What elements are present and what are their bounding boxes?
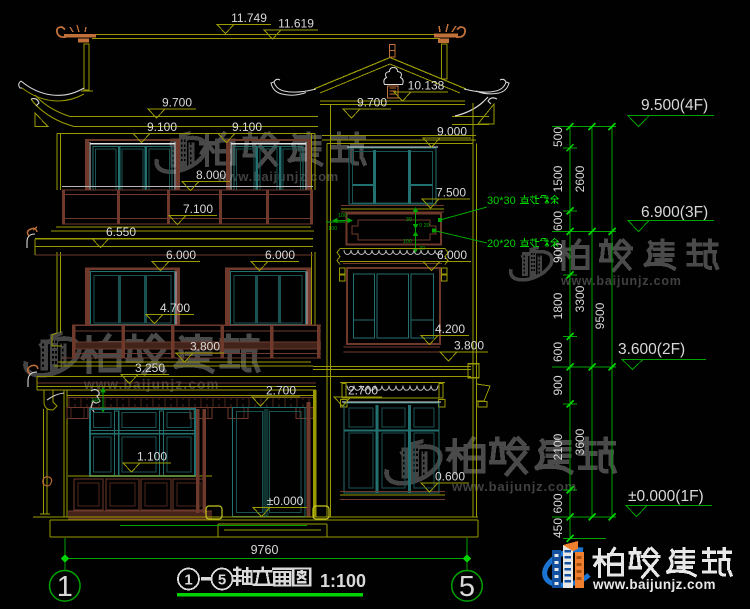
svg-text:5: 5 (459, 571, 475, 603)
svg-text:5: 5 (218, 572, 226, 589)
svg-text:6.550: 6.550 (106, 225, 136, 239)
svg-text:1500: 1500 (551, 165, 565, 192)
svg-text:1800: 1800 (551, 292, 565, 319)
svg-text:1: 1 (184, 572, 192, 589)
svg-text:900: 900 (551, 243, 565, 263)
svg-text:9.700: 9.700 (162, 96, 192, 110)
svg-text:30*30: 30*30 (487, 195, 516, 207)
svg-text:30: 30 (406, 217, 412, 223)
svg-text:100: 100 (328, 226, 337, 232)
svg-text:3.600(2F): 3.600(2F) (618, 341, 685, 358)
svg-text:11.619: 11.619 (278, 17, 314, 31)
svg-text:±0.000: ±0.000 (267, 494, 304, 508)
svg-text:3.800: 3.800 (454, 339, 484, 353)
svg-text:600: 600 (551, 342, 565, 362)
svg-text:450: 450 (551, 518, 565, 538)
svg-text:2600: 2600 (573, 165, 587, 192)
svg-text:100: 100 (338, 213, 347, 219)
svg-text:10.138: 10.138 (408, 79, 445, 93)
svg-text:1:100: 1:100 (320, 571, 366, 591)
svg-text:600: 600 (551, 493, 565, 513)
svg-text:1.100: 1.100 (137, 450, 167, 464)
svg-text:4.700: 4.700 (160, 301, 190, 315)
svg-text:500: 500 (551, 127, 565, 147)
svg-text:6.000: 6.000 (166, 248, 196, 262)
svg-text:7.500: 7.500 (436, 186, 466, 200)
svg-text:20*20: 20*20 (487, 238, 516, 250)
svg-text:0.600: 0.600 (435, 470, 465, 484)
svg-text:9500: 9500 (593, 302, 607, 329)
svg-text:3.800: 3.800 (190, 340, 220, 354)
svg-text:900: 900 (551, 375, 565, 395)
svg-text:6.000: 6.000 (437, 248, 467, 262)
svg-text:6.900(3F): 6.900(3F) (641, 204, 708, 221)
svg-text:9760: 9760 (251, 543, 279, 557)
svg-text:3300: 3300 (573, 285, 587, 312)
svg-text:7.100: 7.100 (183, 202, 213, 216)
svg-text:100: 100 (403, 239, 412, 245)
svg-text:1: 1 (57, 571, 73, 603)
svg-text:9.100: 9.100 (147, 120, 177, 134)
svg-text:2100: 2100 (551, 433, 565, 460)
svg-text:9.500(4F): 9.500(4F) (641, 97, 708, 114)
svg-text:9.000: 9.000 (437, 125, 467, 139)
svg-text:2.700: 2.700 (266, 384, 296, 398)
svg-text:3600: 3600 (573, 428, 587, 455)
svg-text:9.100: 9.100 (232, 120, 262, 134)
svg-text:2.700: 2.700 (348, 384, 378, 398)
svg-text:4.200: 4.200 (435, 322, 465, 336)
svg-text:600: 600 (551, 211, 565, 231)
svg-text:www.baijunjz.com: www.baijunjz.com (592, 577, 716, 592)
svg-text:9.700: 9.700 (357, 96, 387, 110)
svg-text:6.000: 6.000 (265, 248, 295, 262)
svg-text:±0.000(1F): ±0.000(1F) (628, 488, 704, 505)
svg-text:www.baijunjz.com: www.baijunjz.com (451, 479, 577, 494)
svg-text:0 20: 0 20 (419, 223, 430, 229)
svg-text:11.749: 11.749 (231, 11, 267, 25)
svg-text:240: 240 (91, 398, 100, 404)
svg-text:3.250: 3.250 (135, 361, 165, 375)
svg-text:8.000: 8.000 (196, 168, 226, 182)
